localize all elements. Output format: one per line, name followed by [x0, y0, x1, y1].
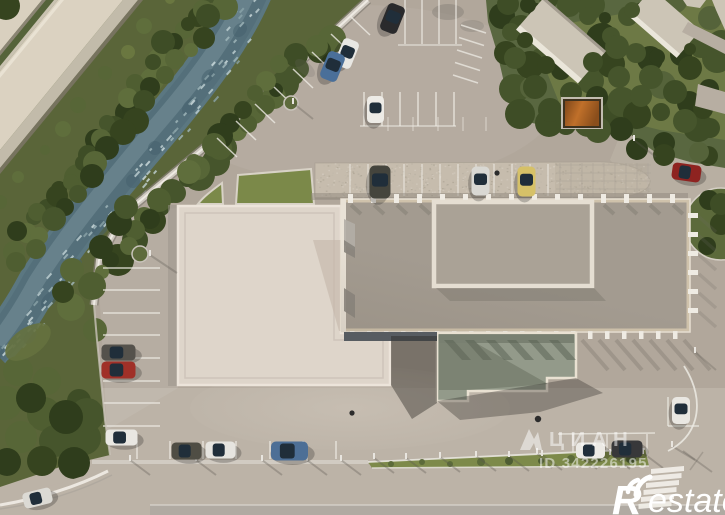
svg-text:ЦИАН: ЦИАН [549, 428, 634, 451]
svg-text:R: R [612, 477, 642, 515]
svg-text:estate: estate [648, 482, 725, 515]
svg-text:ID 342226195: ID 342226195 [539, 455, 648, 472]
